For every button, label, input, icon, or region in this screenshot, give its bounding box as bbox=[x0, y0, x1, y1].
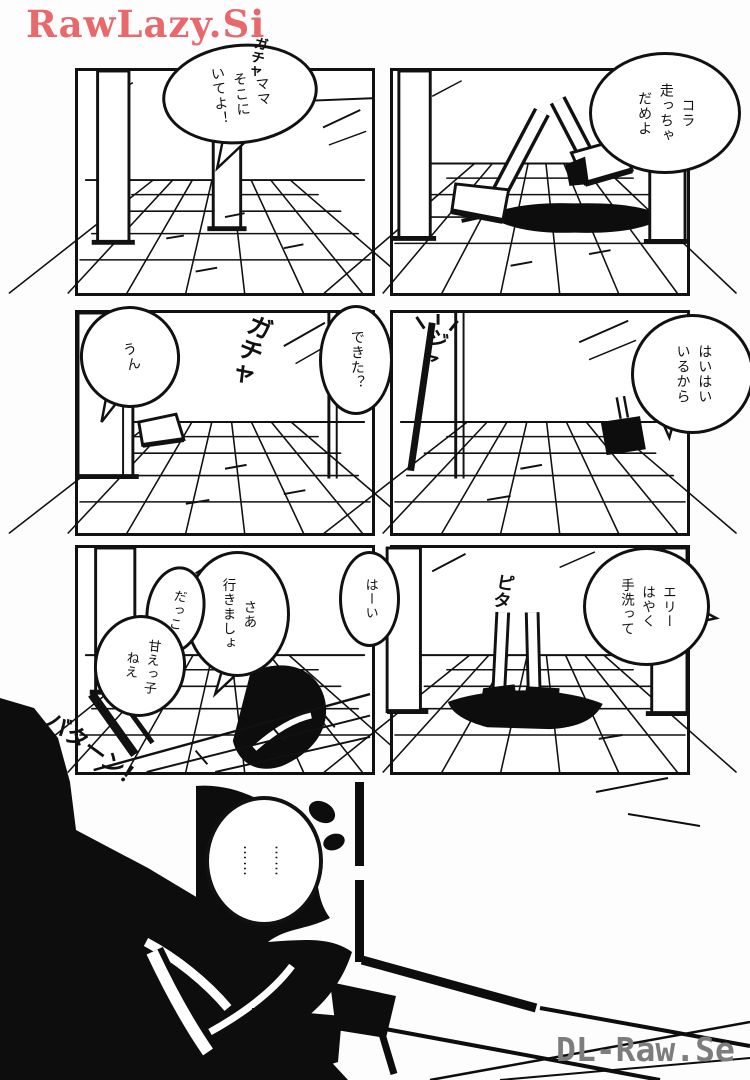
speech-text: うん bbox=[116, 340, 144, 374]
speech-text: 甘えっ子 ねえ bbox=[117, 636, 163, 696]
site-watermark-top: RawLazy.Si bbox=[26, 2, 265, 46]
speech-text: ママ そこに いてよ！ bbox=[205, 61, 276, 127]
speech-text: できた？ bbox=[345, 330, 367, 390]
speech-text: …… …… bbox=[233, 845, 296, 877]
site-watermark-bottom: DL-Raw.Se bbox=[556, 1030, 735, 1069]
speech-bubble-kora: コラ 走っちゃ だめよ bbox=[589, 52, 741, 174]
speech-text: さあ 行きましょ bbox=[217, 578, 259, 651]
speech-text: はいはい いるから bbox=[671, 344, 714, 404]
speech-bubble-dekita: できた？ bbox=[319, 305, 393, 415]
speech-text: エリー はやく 手洗って bbox=[615, 578, 678, 636]
speech-text: コラ 走っちゃ だめよ bbox=[632, 83, 697, 143]
speech-bubble-silence: …… …… bbox=[205, 796, 323, 926]
speech-text: はーい bbox=[359, 578, 379, 620]
speech-bubble-haihai: はいはい いるから bbox=[631, 314, 750, 434]
speech-bubble-erii: エリー はやく 手洗って bbox=[583, 547, 710, 666]
speech-bubble-haai: はーい bbox=[339, 551, 400, 647]
manga-page: RawLazy.Si DL-Raw.Se bbox=[0, 0, 750, 1080]
